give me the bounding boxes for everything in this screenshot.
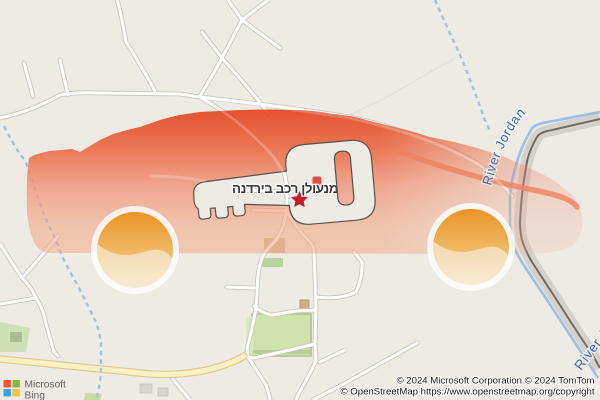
svg-text:Microsoft: Microsoft [25,380,66,391]
svg-text:© 2024 Microsoft Corporation ©: © 2024 Microsoft Corporation © 2024 TomT… [397,376,595,387]
svg-text:Bing: Bing [25,390,46,400]
svg-text:© OpenStreetMap https://www.op: © OpenStreetMap https://www.openstreetma… [341,387,595,398]
